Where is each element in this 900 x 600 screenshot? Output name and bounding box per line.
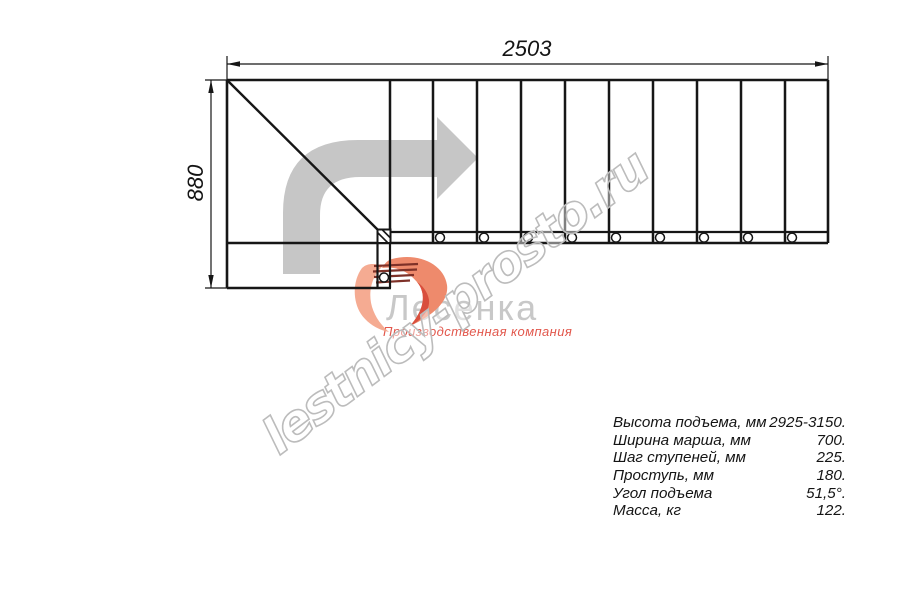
dimension-arrow-down-icon	[208, 275, 213, 288]
newel-post	[378, 230, 391, 244]
direction-arrow-icon	[283, 117, 478, 274]
dimension-height	[205, 80, 228, 288]
bolt-circle	[788, 233, 797, 242]
dimension-width	[227, 56, 828, 80]
bolt-circle	[700, 233, 709, 242]
dimension-arrow-up-icon	[208, 80, 213, 93]
bolt-circle	[612, 233, 621, 242]
bolt-circle	[436, 233, 445, 242]
bolt-circle	[744, 233, 753, 242]
bolt-circle	[656, 233, 665, 242]
bolt-circle	[380, 273, 389, 282]
dimension-arrow-left-icon	[227, 61, 240, 66]
stair-drawing-page: Лесенка Производственная компания	[0, 0, 900, 600]
dimension-arrow-right-icon	[815, 61, 828, 66]
